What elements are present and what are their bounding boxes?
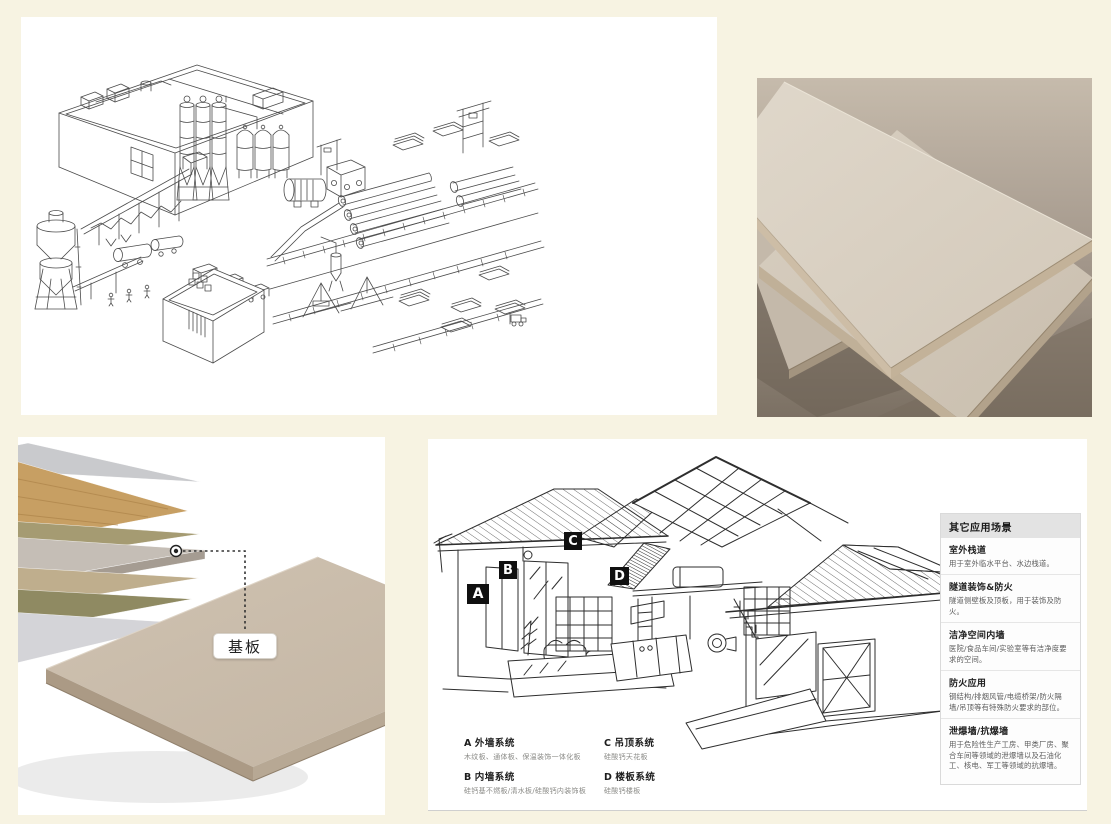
section-desc: 用于室外临水平台、水边栈道。 [949, 559, 1072, 570]
legend-desc: 硅酸钙楼板 [604, 786, 754, 796]
section-desc: 隧道侧壁板及顶板，用于装饰及防火。 [949, 596, 1072, 618]
forklift [510, 313, 526, 326]
fiber-cement-boards-photo [757, 78, 1092, 417]
section-desc: 钢结构/排烟风管/电缆桥架/防火隔墙/吊顶等有特殊防火要求的部位。 [949, 692, 1072, 714]
legend-key: C [604, 738, 611, 749]
legend-title: 楼板系统 [615, 772, 655, 783]
floor-slab [633, 567, 762, 641]
legend-item-interior-wall: B内墙系统 硅钙基不燃板/清水板/硅酸钙内装饰板 [464, 769, 614, 796]
forming-machine [284, 160, 365, 207]
other-applications-sidebar: 其它应用场景 室外栈道 用于室外临水平台、水边栈道。 隧道装饰&防火 隧道侧壁板… [940, 513, 1081, 785]
factory-isometric-illustration [21, 17, 717, 415]
legend-column-right: C吊顶系统 硅酸钙天花板 D楼板系统 硅酸钙楼板 [604, 735, 754, 803]
legend-key: A [464, 738, 472, 749]
sidebar-section-walkway: 室外栈道 用于室外临水平台、水边栈道。 [941, 538, 1080, 574]
legend-column-left: A外墙系统 木纹板、通体板、保温装饰一体化板 B内墙系统 硅钙基不燃板/清水板/… [464, 735, 614, 803]
section-desc: 用于危险性生产工房、甲类厂房、聚合车间等领域的泄爆墙以及石油化工、核电、军工等领… [949, 740, 1072, 773]
legend-item-exterior-wall: A外墙系统 木纹板、通体板、保温装饰一体化板 [464, 735, 614, 762]
sidebar-section-fireproof: 防火应用 钢结构/排烟风管/电缆桥架/防火隔墙/吊顶等有特殊防火要求的部位。 [941, 670, 1080, 718]
legend-key: B [464, 772, 472, 783]
factory-line-drawing-panel [21, 17, 717, 415]
legend-desc: 硅钙基不燃板/清水板/硅酸钙内装饰板 [464, 786, 614, 796]
small-building [163, 269, 264, 363]
rail-tracks [267, 183, 544, 353]
legend-title: 吊顶系统 [614, 738, 654, 749]
legend-desc: 木纹板、通体板、保温装饰一体化板 [464, 752, 614, 762]
sidebar-section-tunnel: 隧道装饰&防火 隧道侧壁板及顶板，用于装饰及防火。 [941, 574, 1080, 622]
legend-desc: 硅酸钙天花板 [604, 752, 754, 762]
duct-fan [708, 634, 736, 652]
section-title: 洁净空间内墙 [949, 628, 1072, 641]
marker-B: B [499, 561, 517, 579]
base-board-label: 基板 [213, 633, 277, 659]
slab-stacks [393, 122, 525, 332]
sidebar-section-blast: 泄爆墙/抗爆墙 用于危险性生产工房、甲类厂房、聚合车间等领域的泄爆墙以及石油化工… [941, 718, 1080, 777]
worker-figures [108, 285, 150, 306]
control-building [59, 65, 313, 215]
layered-boards-panel: 基板 [18, 437, 385, 815]
legend-title: 外墙系统 [475, 738, 515, 749]
sidebar-header: 其它应用场景 [941, 514, 1080, 538]
section-title: 室外栈道 [949, 543, 1072, 556]
board-layers-illustration [18, 437, 385, 815]
sidebar-section-cleanroom: 洁净空间内墙 医院/食品车间/实验室等有洁净度要求的空间。 [941, 622, 1080, 670]
boards-photo-illustration [757, 78, 1092, 417]
feed-hoppers [35, 211, 81, 310]
legend-key: D [604, 772, 612, 783]
marker-A: A [467, 584, 489, 604]
legend-title: 内墙系统 [475, 772, 515, 783]
house-application-panel: A B C D A外墙系统 木纹板、通体板、保温装饰一体化板 B内墙系统 硅钙基… [428, 439, 1087, 811]
section-title: 防火应用 [949, 676, 1072, 689]
section-title: 隧道装饰&防火 [949, 580, 1072, 593]
legend-item-floor: D楼板系统 硅酸钙楼板 [604, 769, 754, 796]
gantry-cranes [291, 101, 491, 319]
section-title: 泄爆墙/抗爆墙 [949, 724, 1072, 737]
legend-item-ceiling: C吊顶系统 硅酸钙天花板 [604, 735, 754, 762]
marker-C: C [564, 532, 582, 550]
marker-D: D [610, 567, 629, 585]
section-desc: 医院/食品车间/实验室等有洁净度要求的空间。 [949, 644, 1072, 666]
garage-door [818, 639, 875, 717]
